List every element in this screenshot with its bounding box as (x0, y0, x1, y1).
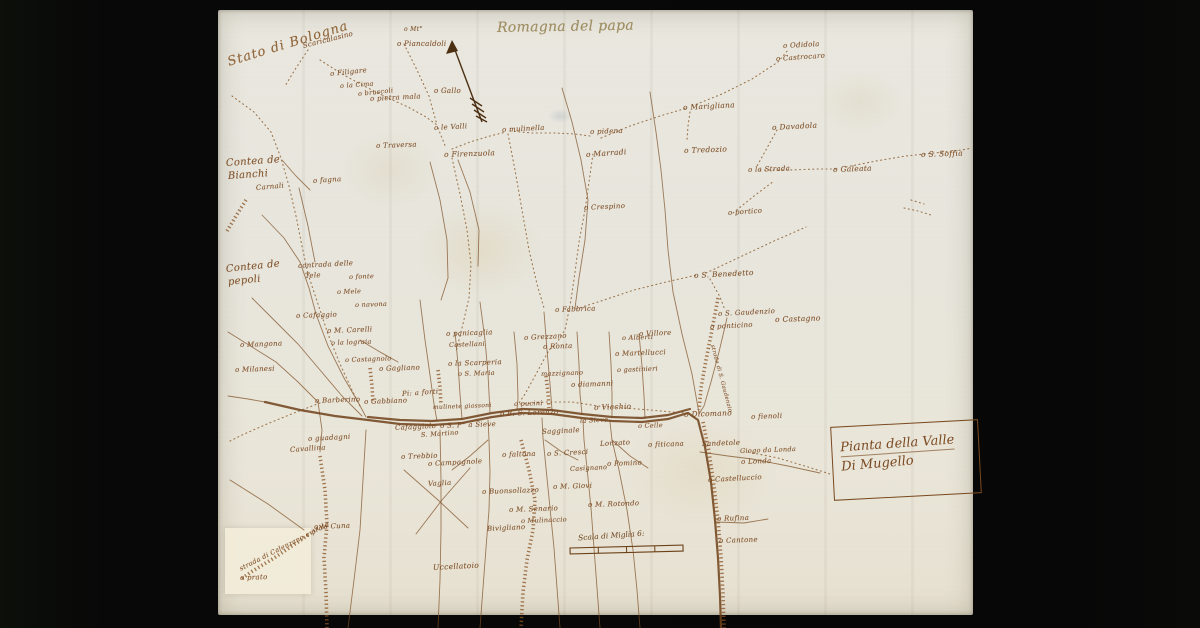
stream-line (544, 312, 552, 410)
stream-line (480, 302, 490, 412)
place-label: o Fabbrica (555, 305, 596, 314)
place-label: o Barberino (315, 395, 361, 405)
stream-line (230, 480, 304, 530)
ladder-road (546, 376, 549, 408)
place-label: o M. Senario (509, 504, 558, 514)
stream-line (416, 468, 470, 534)
stream-line (348, 430, 366, 628)
dotted-road (508, 134, 544, 308)
stream-line (430, 162, 448, 300)
place-label: o Pomino (607, 459, 642, 468)
place-label: Castellani (449, 340, 485, 349)
place-label: o Vicchio (594, 402, 632, 412)
dotted-road (452, 132, 506, 149)
dotted-road (687, 112, 690, 140)
place-label: o Mt° (404, 26, 423, 33)
screenshot-stage: Stato di BolognaRomagna del papaContea d… (0, 0, 1200, 628)
place-label: o Traversa (376, 141, 417, 150)
dotted-road (549, 154, 593, 350)
north-arrow-icon (452, 42, 482, 122)
place-label: Sandetole (702, 439, 740, 448)
place-label: o pucini (514, 399, 543, 408)
stream-line (420, 300, 437, 421)
dotted-road (692, 50, 788, 106)
place-label: o fienoli (751, 412, 783, 421)
place-label: o Londa (741, 457, 772, 466)
place-label: la Sieve (580, 416, 609, 425)
place-label: Tele (305, 271, 321, 280)
place-label: o gastinieri (617, 365, 658, 374)
stream-line (458, 160, 479, 266)
place-label: o Celle (638, 421, 663, 430)
place-label: Vaglia (428, 479, 452, 488)
dotted-road (706, 227, 806, 273)
place-label: o diamanni (571, 380, 614, 389)
stream-line (639, 334, 645, 418)
place-label: o Gagliano (379, 364, 420, 373)
place-label: o Mangona (240, 340, 283, 349)
dotted-road (230, 403, 320, 441)
dotted-road (911, 200, 924, 204)
place-label: o la lograia (331, 338, 372, 347)
place-label: o fiticana (648, 440, 684, 449)
place-label: o la Strada (748, 165, 790, 174)
dotted-road (710, 279, 725, 310)
dotted-road (757, 130, 777, 166)
stream-line (610, 422, 640, 628)
place-label: Romagna del papa (497, 18, 634, 36)
stream-line (299, 188, 315, 262)
place-label: o Tredozio (684, 144, 727, 154)
place-label: o M. Giovi (553, 482, 593, 491)
place-label: o Dicomano (684, 408, 732, 419)
place-label: mazzignano (541, 369, 584, 378)
place-label: o panicaglia (446, 328, 493, 338)
place-label: o Galeata (833, 164, 872, 174)
stream-line (228, 396, 265, 402)
place-label: o S. Maria (458, 369, 495, 378)
place-label: o pidena (590, 127, 623, 136)
place-label: o navona (355, 300, 387, 309)
place-label: o Firenzuola (444, 148, 495, 159)
ladder-road (320, 456, 327, 628)
ladder-road (438, 370, 441, 404)
ladder-road (521, 440, 535, 628)
place-label: o Mulinaccio (521, 515, 567, 525)
dotted-road (404, 44, 437, 125)
place-label: o M. Carelli (327, 325, 373, 335)
place-label: o prato (240, 573, 268, 582)
place-label: o Mele (337, 287, 361, 296)
place-label: o Piancaldoli (397, 40, 446, 48)
place-label: o Cafaggio (296, 311, 337, 320)
stream-line (514, 332, 518, 410)
dotted-road (285, 50, 308, 86)
place-label: o Milanesi (235, 365, 275, 374)
place-label: o S. Soffia (921, 149, 963, 159)
ladder-road (227, 200, 246, 231)
place-label: o Alberti (622, 333, 654, 342)
title-cartouche: Pianta della Valle Di Mugello (830, 419, 982, 501)
place-label: o Ronta (543, 342, 573, 351)
place-label: o Gabbiano (364, 396, 408, 406)
stream-line (562, 88, 588, 308)
stream-line (282, 160, 310, 190)
place-label: o Cantone (719, 536, 758, 545)
dotted-road (904, 208, 931, 215)
place-label: Lonzato (600, 438, 631, 448)
place-label: o Gallo (434, 87, 461, 95)
place-label: o Castagnolo (345, 354, 392, 364)
place-label: o Castagno (775, 313, 821, 324)
place-label: o faltona (502, 450, 536, 459)
place-label: o Rufina (717, 514, 749, 523)
place-label: o fonte (349, 272, 374, 281)
